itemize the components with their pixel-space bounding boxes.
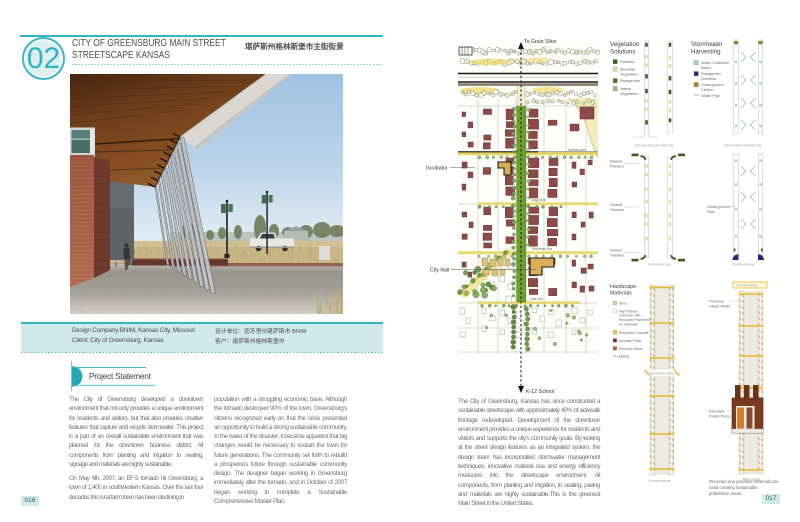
svg-text:Kansas Ave: Kansas Ave <box>568 148 586 152</box>
svg-text:Planters: Planters <box>610 164 624 169</box>
svg-text:Concrete with: Concrete with <box>619 314 640 318</box>
svg-text:Water Pipe: Water Pipe <box>701 93 720 98</box>
svg-text:used creating sustainable: used creating sustainable <box>709 485 758 490</box>
svg-text:Recycled Pavement: Recycled Pavement <box>619 318 650 322</box>
svg-text:Hardscape: Hardscape <box>610 284 636 290</box>
svg-text:✳ Lighting: ✳ Lighting <box>613 355 629 359</box>
svg-text:Brick: Brick <box>619 301 627 305</box>
svg-text:Florida Avenue: Florida Avenue <box>732 263 755 267</box>
svg-text:Pipe: Pipe <box>707 209 715 214</box>
svg-text:Raingarden: Raingarden <box>620 78 640 83</box>
svg-text:Planters: Planters <box>610 207 624 212</box>
svg-text:Recycled and pervious material: Recycled and pervious materials are <box>709 479 779 484</box>
svg-text:Florida Avenue: Florida Avenue <box>648 479 671 483</box>
svg-text:Pervious Paver: Pervious Paver <box>619 347 644 351</box>
svg-text:pedestrian areas: pedestrian areas <box>709 491 741 496</box>
svg-text:Tonga Ave: Tonga Ave <box>530 198 546 202</box>
svg-text:Materials: Materials <box>610 291 632 297</box>
svg-text:Overflow: Overflow <box>701 76 717 81</box>
svg-text:To Grain Silos: To Grain Silos <box>524 39 557 45</box>
svg-text:Kansas Avenue(Hwy 54): Kansas Avenue(Hwy 54) <box>724 144 761 148</box>
svg-text:Harvesting: Harvesting <box>691 49 721 56</box>
svg-text:K-12 School: K-12 School <box>526 389 554 395</box>
svg-text:Modular Pavel: Modular Pavel <box>619 339 642 343</box>
svg-text:Public Plaza: Public Plaza <box>709 414 731 419</box>
svg-text:Kansas Avenue (Hwy 54): Kansas Avenue (Hwy 54) <box>635 144 673 148</box>
svg-text:Stormwater: Stormwater <box>691 41 723 48</box>
svg-text:Florida Avenue: Florida Avenue <box>737 284 758 288</box>
svg-text:Basin: Basin <box>701 65 711 70</box>
svg-text:Planters: Planters <box>620 59 634 64</box>
svg-text:Planters: Planters <box>610 253 624 258</box>
svg-text:Recycled Concrete: Recycled Concrete <box>619 331 649 335</box>
svg-text:High Planed: High Planed <box>619 309 638 313</box>
svg-text:Cistern: Cistern <box>701 87 713 92</box>
svg-text:Florida Avenue: Florida Avenue <box>648 263 671 267</box>
svg-text:Vegetation: Vegetation <box>620 72 638 77</box>
svg-text:Vegetation: Vegetation <box>620 91 638 96</box>
svg-text:for sidewalk: for sidewalk <box>619 323 638 327</box>
svg-text:City Hall: City Hall <box>430 268 449 274</box>
svg-text:Sherman Ave: Sherman Ave <box>532 247 552 251</box>
svg-text:Solutions: Solutions <box>610 49 635 56</box>
svg-text:Vegetation: Vegetation <box>610 41 640 48</box>
svg-text:Street Width: Street Width <box>709 304 730 309</box>
svg-text:Incubator: Incubator <box>426 166 448 172</box>
svg-text:Oak Ave: Oak Ave <box>530 297 543 301</box>
